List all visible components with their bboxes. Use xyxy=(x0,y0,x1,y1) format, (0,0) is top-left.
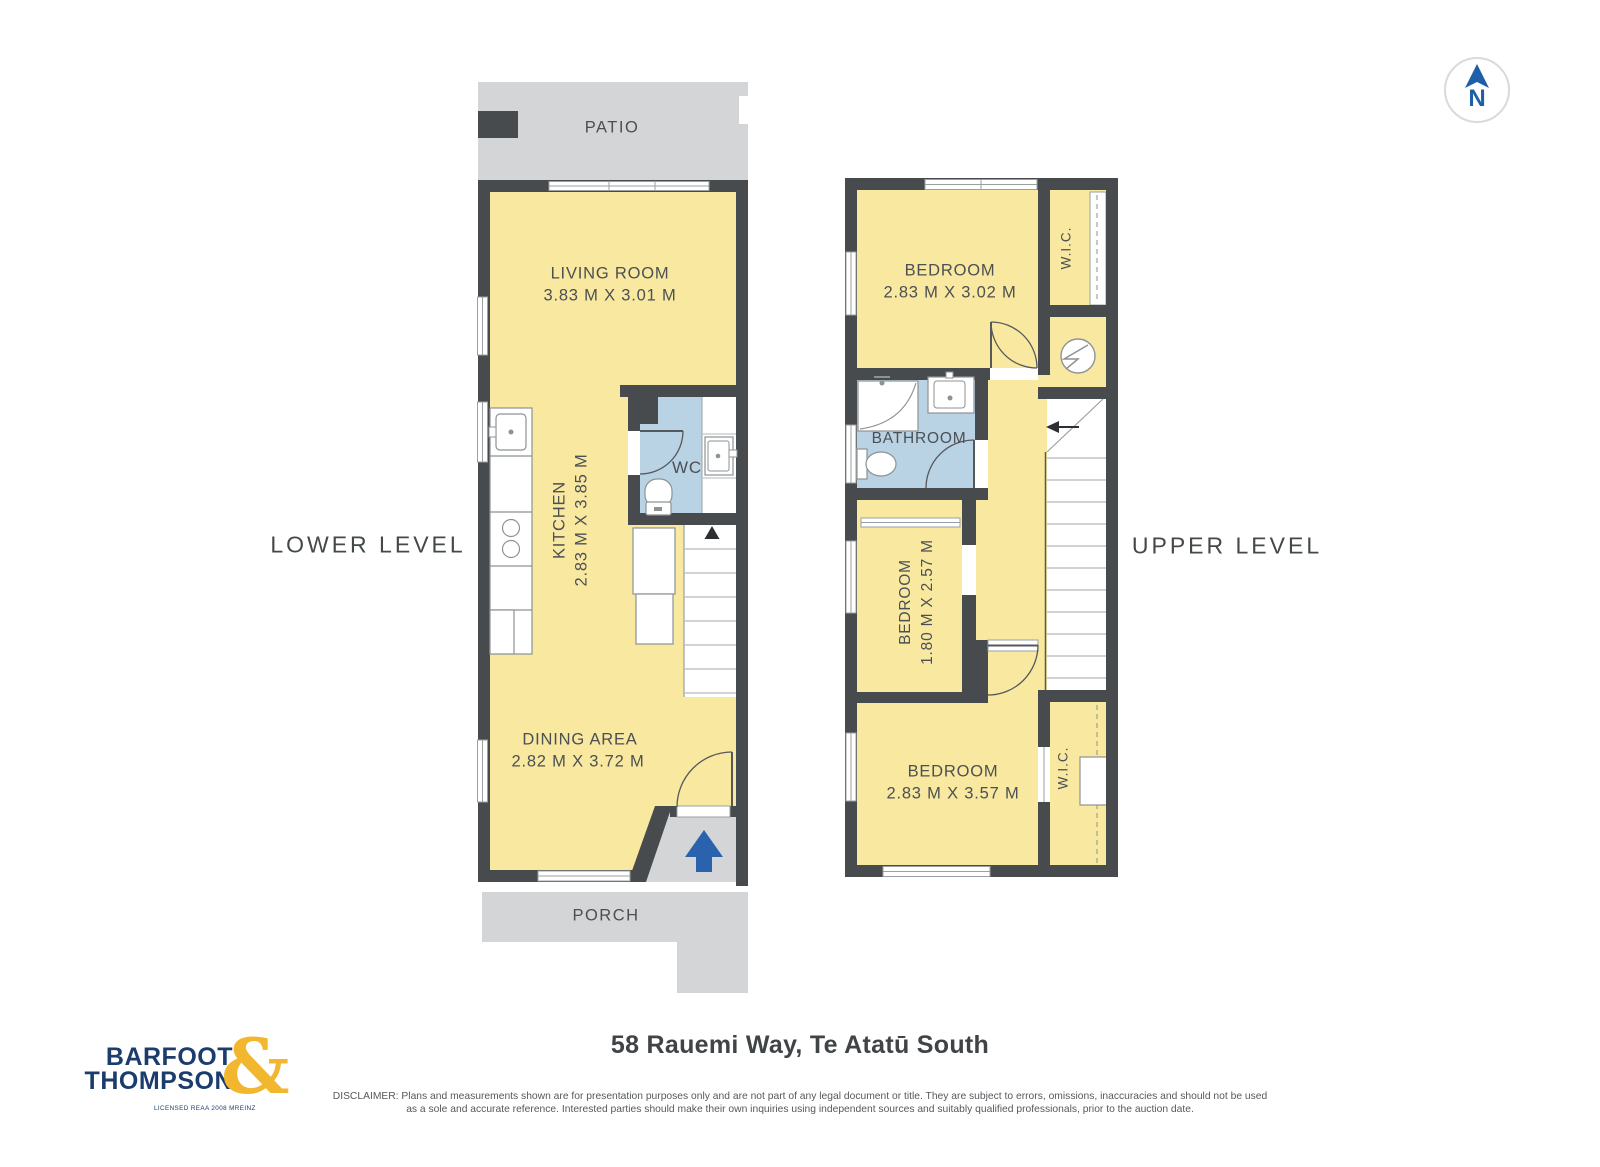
label-bedroom2-dims: 1.80 M X 2.57 M xyxy=(919,539,937,665)
bedroom2-wardrobe xyxy=(861,518,960,527)
label-living-room-dims: 3.83 M X 3.01 M xyxy=(543,287,676,306)
label-living-room: LIVING ROOM xyxy=(551,265,670,284)
label-dining-area-dims: 2.82 M X 3.72 M xyxy=(511,753,644,772)
upper-level-label: UPPER LEVEL xyxy=(1132,533,1322,560)
wic1-closet xyxy=(1090,192,1106,305)
compass: N xyxy=(1444,57,1510,123)
bathroom-sink-icon xyxy=(928,372,974,413)
compass-north-label: N xyxy=(1446,85,1508,113)
label-kitchen: KITCHEN xyxy=(551,481,570,559)
label-bathroom: BATHROOM xyxy=(872,430,967,448)
label-wc: WC xyxy=(672,458,702,478)
label-patio: PATIO xyxy=(585,119,640,138)
disclaimer-line1: DISCLAIMER: Plans and measurements shown… xyxy=(0,1091,1600,1102)
label-porch: PORCH xyxy=(572,907,639,926)
label-bedroom3-dims: 2.83 M X 3.57 M xyxy=(886,785,1019,804)
wc-vanity-icon xyxy=(705,437,737,475)
label-dining-area: DINING AREA xyxy=(522,731,637,750)
hot-water-cylinder-icon xyxy=(1061,339,1095,373)
floor-plan-page: LOWER LEVEL UPPER LEVEL PATIO LIVING ROO… xyxy=(0,0,1600,1167)
label-bedroom2: BEDROOM xyxy=(897,559,915,645)
wc-door-opening xyxy=(628,431,640,475)
label-bedroom1-dims: 2.83 M X 3.02 M xyxy=(883,284,1016,303)
label-wic1: W.I.C. xyxy=(1059,227,1074,270)
stairs-lower xyxy=(684,525,736,697)
label-bedroom3: BEDROOM xyxy=(908,763,999,782)
entry-threshold xyxy=(677,806,730,817)
lower-plan xyxy=(478,82,749,993)
label-bedroom1: BEDROOM xyxy=(905,262,996,281)
stairwell-fill xyxy=(1047,398,1106,690)
wc-toilet-icon xyxy=(645,479,672,515)
lower-level-label: LOWER LEVEL xyxy=(270,532,465,559)
disclaimer-line2: as a sole and accurate reference. Intere… xyxy=(0,1104,1600,1115)
fridge-pantry-icon xyxy=(633,528,675,644)
property-address: 58 Rauemi Way, Te Atatū South xyxy=(0,1031,1600,1060)
label-wic2: W.I.C. xyxy=(1056,747,1071,790)
shower-icon xyxy=(858,377,918,431)
floor-plan-graphics xyxy=(0,0,1600,1167)
label-kitchen-dims: 2.83 M X 3.85 M xyxy=(573,453,592,586)
